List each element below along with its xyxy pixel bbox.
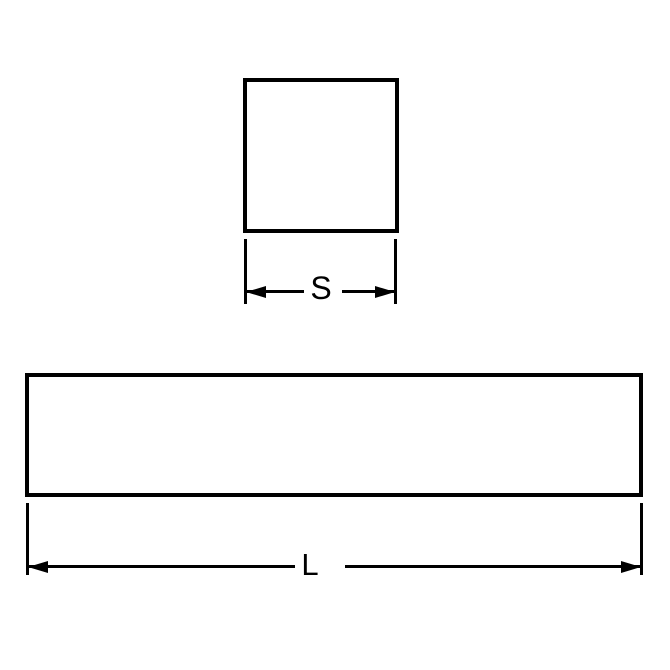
bar-side-view-outline <box>25 373 643 497</box>
l-dimension-line-left-segment <box>28 565 295 568</box>
square-cross-section-outline <box>243 78 399 233</box>
s-arrowhead-right-icon <box>375 286 395 298</box>
bar-length-dimension-label: L <box>289 549 331 580</box>
l-arrowhead-right-icon <box>621 561 641 573</box>
square-side-dimension-label: S <box>300 272 342 304</box>
l-arrowhead-left-icon <box>28 561 48 573</box>
s-arrowhead-left-icon <box>246 286 266 298</box>
l-dimension-line-right-segment <box>345 565 641 568</box>
technical-drawing-canvas: S L <box>0 0 670 670</box>
